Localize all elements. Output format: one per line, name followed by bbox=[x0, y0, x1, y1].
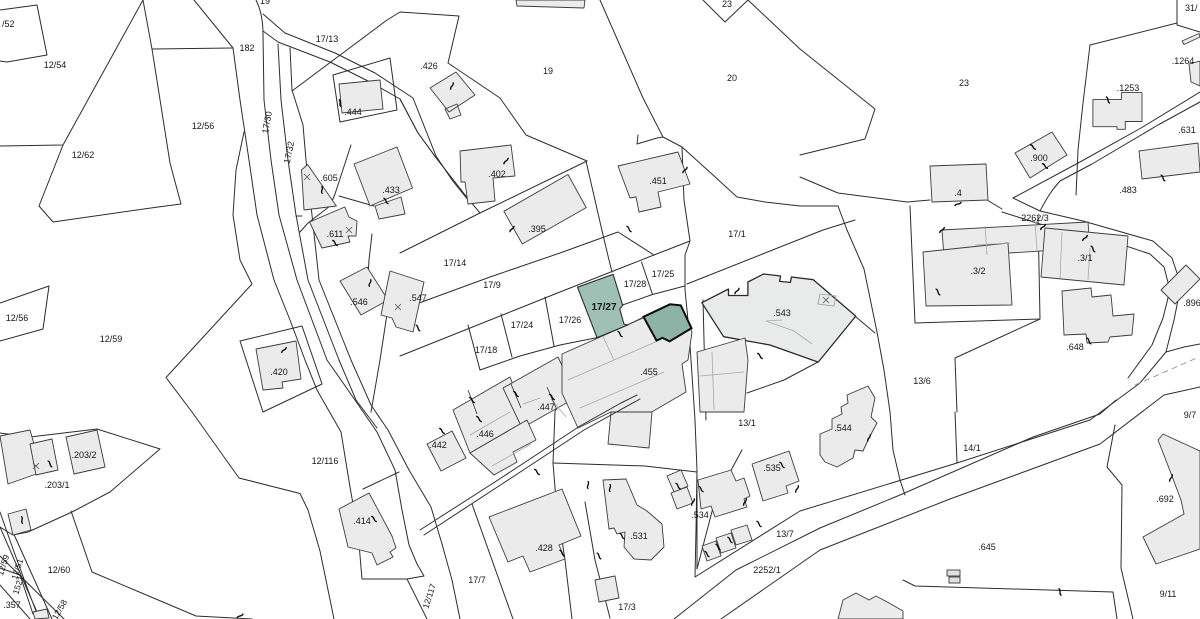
svg-text:.447: .447 bbox=[537, 402, 555, 412]
svg-text:.428: .428 bbox=[535, 543, 553, 553]
svg-text:.203/1: .203/1 bbox=[44, 480, 69, 490]
svg-text:14/1: 14/1 bbox=[963, 443, 981, 453]
svg-text:.483: .483 bbox=[1119, 185, 1137, 195]
svg-text:12/56: 12/56 bbox=[192, 121, 215, 131]
svg-text:12/59: 12/59 bbox=[100, 334, 123, 344]
svg-text:.1264: .1264 bbox=[1172, 56, 1195, 66]
svg-text:.692: .692 bbox=[1156, 494, 1174, 504]
svg-text:9/7: 9/7 bbox=[1184, 410, 1197, 420]
svg-text:19: 19 bbox=[260, 0, 270, 6]
svg-text:19: 19 bbox=[543, 66, 553, 76]
svg-text:.414: .414 bbox=[353, 516, 371, 526]
svg-text:.611: .611 bbox=[327, 229, 344, 239]
svg-text:.446: .446 bbox=[476, 429, 494, 439]
svg-text:13/1: 13/1 bbox=[738, 418, 756, 428]
svg-text:17/26: 17/26 bbox=[559, 315, 582, 325]
svg-text:23: 23 bbox=[959, 78, 969, 88]
svg-text:17/14: 17/14 bbox=[444, 258, 467, 268]
svg-text:.455: .455 bbox=[640, 367, 658, 377]
svg-text:.534: .534 bbox=[691, 510, 709, 520]
svg-text:.203/2: .203/2 bbox=[71, 450, 96, 460]
svg-text:17/18: 17/18 bbox=[475, 345, 498, 355]
svg-text:17/7: 17/7 bbox=[468, 575, 486, 585]
svg-text:17/24: 17/24 bbox=[511, 320, 534, 330]
svg-text:.426: .426 bbox=[420, 61, 438, 71]
svg-text:17/3: 17/3 bbox=[618, 602, 636, 612]
svg-text:.451: .451 bbox=[649, 176, 667, 186]
svg-text:.900: .900 bbox=[1030, 153, 1048, 163]
svg-text:12/54: 12/54 bbox=[44, 60, 67, 70]
svg-text:182: 182 bbox=[239, 43, 254, 53]
svg-text:.543: .543 bbox=[773, 308, 791, 318]
svg-text:12/56: 12/56 bbox=[6, 313, 29, 323]
svg-text:.535: .535 bbox=[763, 463, 781, 473]
svg-text:12/60: 12/60 bbox=[48, 565, 71, 575]
svg-text:.605: .605 bbox=[320, 173, 338, 183]
svg-text:17/28: 17/28 bbox=[624, 279, 647, 289]
svg-text:.1253: .1253 bbox=[1117, 83, 1140, 93]
svg-text:12/62: 12/62 bbox=[72, 150, 95, 160]
svg-text:.442: .442 bbox=[429, 440, 447, 450]
svg-text:.357: .357 bbox=[3, 600, 21, 610]
svg-text:.395: .395 bbox=[528, 224, 546, 234]
svg-text:.444: .444 bbox=[344, 107, 362, 117]
svg-text:.420: .420 bbox=[270, 367, 288, 377]
svg-text:.531: .531 bbox=[630, 531, 648, 541]
svg-text:9/11: 9/11 bbox=[1160, 589, 1177, 599]
svg-text:.3/2: .3/2 bbox=[970, 266, 985, 276]
svg-text:.648: .648 bbox=[1066, 342, 1084, 352]
svg-text:.546: .546 bbox=[350, 297, 368, 307]
svg-text:17/13: 17/13 bbox=[316, 34, 339, 44]
svg-text:31/: 31/ bbox=[1185, 3, 1198, 13]
svg-text:/52: /52 bbox=[2, 19, 15, 29]
svg-text:12/116: 12/116 bbox=[312, 456, 339, 466]
svg-text:2262/3: 2262/3 bbox=[1021, 213, 1049, 223]
svg-text:.544: .544 bbox=[834, 423, 852, 433]
svg-text:13/6: 13/6 bbox=[913, 376, 931, 386]
svg-text:17/27: 17/27 bbox=[591, 302, 616, 313]
svg-text:.4: .4 bbox=[954, 188, 962, 198]
svg-text:20: 20 bbox=[727, 73, 737, 83]
svg-text:.547: .547 bbox=[409, 293, 427, 303]
svg-text:23: 23 bbox=[722, 0, 732, 9]
svg-text:.433: .433 bbox=[382, 185, 400, 195]
svg-text:.631: .631 bbox=[1178, 125, 1196, 135]
svg-text:2252/1: 2252/1 bbox=[753, 565, 781, 575]
svg-text:17/25: 17/25 bbox=[652, 269, 675, 279]
svg-text:.645: .645 bbox=[978, 542, 996, 552]
svg-text:13/7: 13/7 bbox=[776, 529, 794, 539]
svg-text:.3/1: .3/1 bbox=[1077, 253, 1092, 263]
svg-text:17/9: 17/9 bbox=[483, 280, 501, 290]
svg-text:17/1: 17/1 bbox=[728, 229, 746, 239]
svg-text:.402: .402 bbox=[488, 169, 506, 179]
svg-text:.896: .896 bbox=[1183, 298, 1200, 308]
